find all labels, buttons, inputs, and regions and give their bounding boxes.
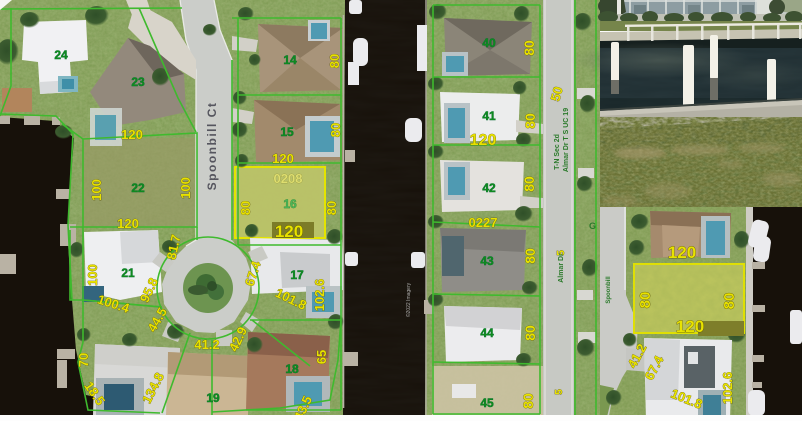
svg-text:80: 80 (324, 201, 339, 215)
svg-text:43: 43 (480, 254, 494, 268)
svg-text:80: 80 (521, 176, 537, 192)
svg-text:80: 80 (327, 54, 342, 68)
svg-text:44: 44 (480, 326, 494, 340)
svg-text:22: 22 (131, 181, 145, 195)
svg-text:80: 80 (522, 248, 538, 264)
svg-text:42: 42 (482, 181, 496, 195)
svg-text:80: 80 (637, 292, 654, 309)
svg-text:21: 21 (121, 266, 135, 280)
svg-text:80: 80 (328, 123, 343, 137)
svg-text:Almar Dr T S UC 19: Almar Dr T S UC 19 (563, 108, 570, 172)
svg-text:80: 80 (520, 393, 536, 409)
svg-text:120: 120 (668, 243, 696, 262)
svg-text:Spoonbill: Spoonbill (606, 276, 612, 304)
svg-text:70: 70 (76, 353, 91, 367)
svg-text:100: 100 (178, 177, 193, 199)
svg-text:G: G (589, 221, 596, 231)
svg-text:23: 23 (131, 75, 145, 89)
svg-text:102.6: 102.6 (312, 279, 327, 312)
svg-text:14: 14 (283, 53, 297, 67)
svg-text:45: 45 (480, 396, 494, 410)
svg-text:120: 120 (121, 127, 143, 142)
svg-text:120: 120 (275, 222, 303, 241)
svg-text:19: 19 (206, 391, 220, 405)
svg-text:16: 16 (283, 197, 297, 211)
svg-text:120: 120 (117, 216, 139, 231)
svg-text:Spoonbill Ct: Spoonbill Ct (205, 102, 219, 191)
svg-text:18: 18 (285, 362, 299, 376)
svg-text:©2022 Imagery: ©2022 Imagery (405, 282, 412, 317)
svg-text:80: 80 (522, 113, 538, 129)
svg-text:17: 17 (290, 268, 304, 282)
svg-text:24: 24 (54, 48, 68, 62)
svg-text:41.2: 41.2 (194, 337, 219, 352)
svg-text:Almar Dr: Almar Dr (558, 253, 565, 283)
svg-text:120: 120 (676, 317, 704, 336)
svg-text:0208: 0208 (274, 171, 303, 186)
svg-text:5: 5 (554, 389, 565, 395)
svg-text:41: 41 (482, 109, 496, 123)
svg-text:80: 80 (721, 293, 738, 310)
svg-text:40: 40 (482, 36, 496, 50)
svg-text:65: 65 (314, 350, 329, 364)
svg-text:120: 120 (470, 132, 497, 149)
svg-text:100: 100 (85, 264, 100, 286)
svg-text:120: 120 (272, 151, 294, 166)
svg-text:T-N Sec 2d: T-N Sec 2d (554, 134, 561, 170)
svg-text:80: 80 (522, 325, 538, 341)
svg-text:80: 80 (238, 201, 253, 215)
svg-text:0227: 0227 (469, 215, 498, 230)
svg-text:80: 80 (521, 40, 537, 56)
svg-text:102.6: 102.6 (720, 372, 735, 405)
svg-text:15: 15 (280, 125, 294, 139)
svg-text:100: 100 (89, 179, 104, 201)
